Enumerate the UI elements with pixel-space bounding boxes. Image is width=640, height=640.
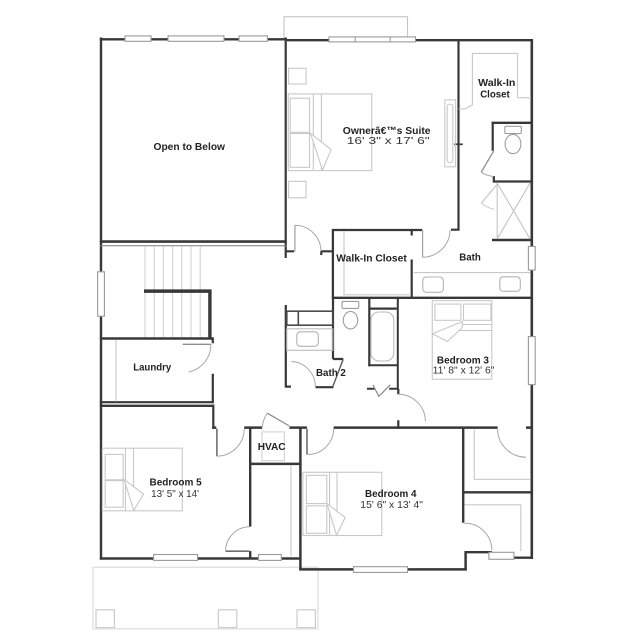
svg-text:Ownerâ€™s Suite: Ownerâ€™s Suite	[343, 125, 431, 137]
svg-text:Walk-In Closet: Walk-In Closet	[336, 252, 407, 264]
svg-text:16' 3" x 17' 6": 16' 3" x 17' 6"	[347, 136, 430, 147]
svg-text:11' 8" x 12' 6": 11' 8" x 12' 6"	[433, 365, 495, 376]
svg-text:Closet: Closet	[480, 89, 510, 101]
svg-text:Walk-In: Walk-In	[478, 77, 515, 89]
svg-text:Open to Below: Open to Below	[154, 141, 226, 153]
svg-text:Bath 2: Bath 2	[316, 367, 346, 379]
svg-text:15' 6" x 13' 4": 15' 6" x 13' 4"	[360, 500, 423, 511]
svg-text:Bedroom 4: Bedroom 4	[365, 488, 417, 500]
svg-text:Bath: Bath	[459, 252, 481, 264]
svg-text:Laundry: Laundry	[133, 361, 171, 373]
svg-text:HVAC: HVAC	[258, 441, 286, 453]
svg-text:13' 5" x 14': 13' 5" x 14'	[151, 489, 199, 500]
svg-text:Bedroom 5: Bedroom 5	[150, 476, 202, 488]
